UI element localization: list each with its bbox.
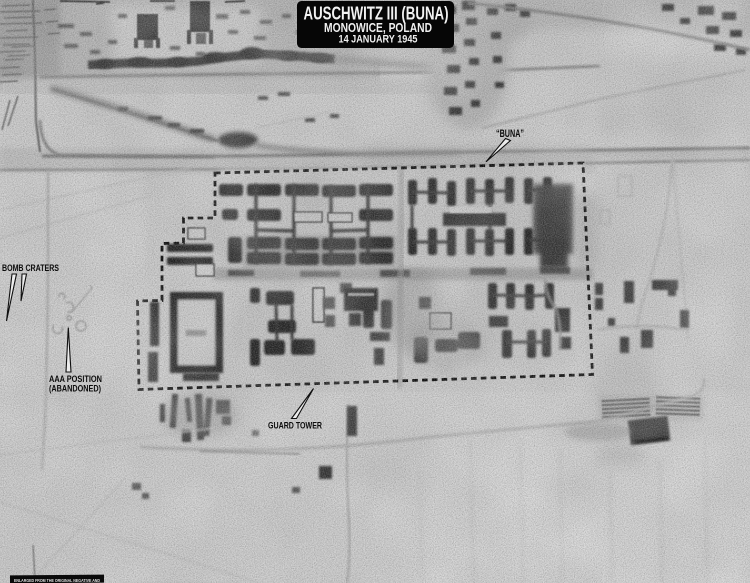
svg-text:“BUNA”: “BUNA”	[496, 128, 524, 140]
svg-text:MONOWICE, POLAND: MONOWICE, POLAND	[324, 20, 432, 35]
svg-text:ENLARGED FROM THE ORIGINAL NEG: ENLARGED FROM THE ORIGINAL NEGATIVE AND	[14, 578, 100, 583]
svg-text:(ABANDONED): (ABANDONED)	[49, 384, 101, 395]
svg-text:BOMB CRATERS: BOMB CRATERS	[2, 263, 59, 274]
svg-text:14 JANUARY 1945: 14 JANUARY 1945	[339, 34, 419, 46]
svg-text:GUARD TOWER: GUARD TOWER	[268, 421, 322, 432]
